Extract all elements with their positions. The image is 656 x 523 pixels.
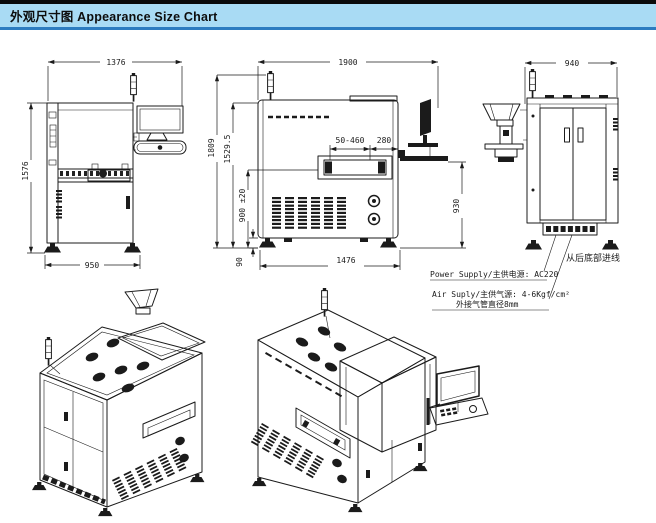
appearance-size-chart-page: 外观尺寸图 Appearance Size Chart: [0, 0, 656, 523]
vent-grid: [251, 423, 324, 478]
note-power-supply: Power Supply/主供电源: AC220: [430, 269, 559, 279]
dimension-930: 930: [400, 162, 466, 248]
svg-text:1476: 1476: [336, 256, 355, 265]
control-buttons: [369, 196, 380, 225]
machine-foot: [380, 238, 397, 248]
control-button: [336, 473, 348, 484]
svg-text:1809: 1809: [207, 138, 216, 157]
svg-text:1529.5: 1529.5: [223, 134, 232, 163]
machine-body-right: [527, 95, 618, 235]
machine-foot: [98, 508, 112, 516]
svg-text:900 ±20: 900 ±20: [238, 188, 247, 222]
view-isometric-right: [251, 288, 488, 512]
vent-grid: [112, 448, 186, 500]
svg-text:1376: 1376: [106, 58, 125, 67]
svg-text:930: 930: [452, 199, 461, 214]
front-face: [107, 353, 202, 507]
machine-foot: [252, 478, 266, 486]
note-cable-entry: 从后底部进线: [566, 252, 620, 264]
vent-grid: [272, 197, 346, 229]
right-side-face: [358, 358, 425, 503]
dimension-950: 950: [45, 255, 140, 270]
dimension-1476: 1476: [260, 250, 400, 270]
machine-foot: [348, 504, 362, 512]
machine-foot: [259, 238, 276, 248]
control-button: [331, 457, 343, 468]
annotations: 从后底部进线 Power Supply/主供电源: AC220 Air Supl…: [430, 235, 620, 310]
svg-text:280: 280: [377, 136, 392, 145]
signal-tower-icon: [131, 73, 137, 102]
monitor-and-keyboard-side: [133, 106, 186, 154]
machine-foot: [602, 240, 619, 250]
front-face: [251, 340, 358, 503]
svg-text:950: 950: [85, 261, 100, 270]
door-face: [40, 373, 107, 507]
view-isometric-left: [32, 289, 205, 516]
dimension-1576: 1576: [21, 103, 47, 253]
svg-text:90: 90: [235, 257, 244, 267]
infeed-conveyor-assembly: [483, 104, 527, 162]
machine-foot: [124, 243, 141, 253]
svg-text:1576: 1576: [21, 161, 30, 180]
signal-tower-icon: [530, 69, 536, 98]
technical-drawing-canvas: 1376 1576 950: [0, 0, 656, 523]
control-button: [174, 435, 186, 447]
monitor-and-keyboard-arm: [428, 366, 488, 425]
conveyor-slot: [143, 402, 195, 438]
machine-foot: [413, 463, 427, 471]
view-front: 1900 1809 1529.5 900 ±20: [207, 58, 466, 270]
view-right-side: 940: [430, 59, 620, 310]
svg-text:50-460: 50-460: [336, 136, 365, 145]
dimension-1809: 1809: [207, 75, 266, 248]
machine-top-face: [40, 323, 205, 400]
machine-foot: [525, 240, 542, 250]
machine-top-face: [258, 310, 425, 397]
trackball: [470, 406, 477, 413]
view-left-side: 1376 1576 950: [21, 58, 186, 270]
conveyor-slot: [318, 156, 392, 179]
signal-tower-icon: [46, 337, 52, 366]
monitor-and-keyboard-front: [398, 99, 448, 161]
hopper: [125, 289, 158, 314]
machine-body-side: [47, 103, 133, 243]
signal-tower-icon: [268, 71, 274, 100]
dimension-1529-5: 1529.5: [223, 103, 258, 248]
svg-text:1900: 1900: [338, 58, 357, 67]
svg-text:940: 940: [565, 59, 580, 68]
note-air-pipe: 外接气管直径8mm: [456, 299, 519, 309]
conveyor-slot: [296, 408, 350, 458]
note-air-supply: Air Suply/主供气源: 4-6Kgf/cm²: [432, 289, 570, 299]
machine-foot: [32, 482, 46, 490]
dimension-280: 280: [370, 136, 398, 149]
dimension-1376: 1376: [48, 58, 182, 106]
machine-foot: [44, 243, 61, 253]
vent-dash-row: [265, 352, 342, 397]
